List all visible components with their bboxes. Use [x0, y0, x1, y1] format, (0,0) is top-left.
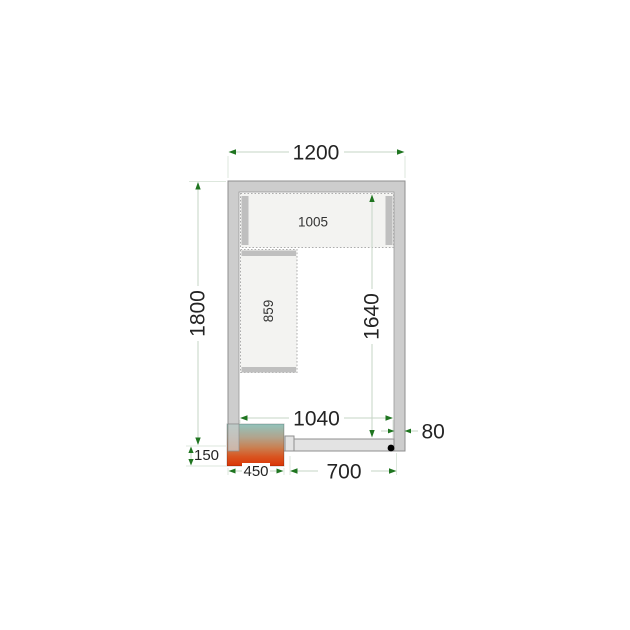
inner-width-value: 1040: [293, 408, 340, 431]
arrow-left-icon: [229, 149, 237, 154]
arrow-down-icon: [188, 459, 193, 466]
shelf-left-top-support: [242, 251, 297, 257]
arrow-up-icon: [195, 182, 200, 190]
dimension-unit-protrusion: 150: [186, 447, 226, 467]
dimension-outer-depth: 1800: [186, 182, 226, 447]
door-left-jamb: [285, 436, 294, 451]
unit-width-value: 450: [243, 463, 268, 480]
shelf-left-length-label: 859: [261, 300, 276, 323]
left-wall-over-unit: [228, 424, 239, 451]
shelf-left: 859: [241, 250, 298, 373]
arrow-right-icon: [277, 469, 284, 474]
arrow-right-icon: [397, 149, 405, 154]
arrow-left-icon: [290, 468, 298, 473]
shelf-top-length-label: 1005: [298, 215, 328, 230]
door-width-value: 700: [326, 461, 361, 484]
door-hinge-dot: [388, 445, 395, 452]
door-panel: [294, 439, 394, 451]
inner-depth-value: 1640: [361, 293, 384, 340]
cold-room-drawing: 1005 859 1200 1800: [0, 0, 630, 630]
outer-width-value: 1200: [293, 142, 340, 165]
arrow-right-icon: [389, 468, 397, 473]
arrow-left-icon: [229, 469, 236, 474]
unit-protrusion-value: 150: [194, 447, 219, 464]
wall-thickness-value: 80: [422, 421, 445, 444]
shelf-top-right-support: [386, 196, 393, 245]
outer-depth-value: 1800: [187, 290, 210, 337]
shelf-top-left-support: [242, 196, 249, 245]
shelf-left-bottom-support: [242, 367, 297, 373]
dimension-door-width: 700: [290, 453, 397, 484]
arrow-down-icon: [195, 438, 200, 446]
dimension-outer-width: 1200: [228, 141, 405, 178]
floor-plan-canvas: 1005 859 1200 1800: [0, 0, 630, 630]
arrow-up-icon: [188, 447, 193, 454]
